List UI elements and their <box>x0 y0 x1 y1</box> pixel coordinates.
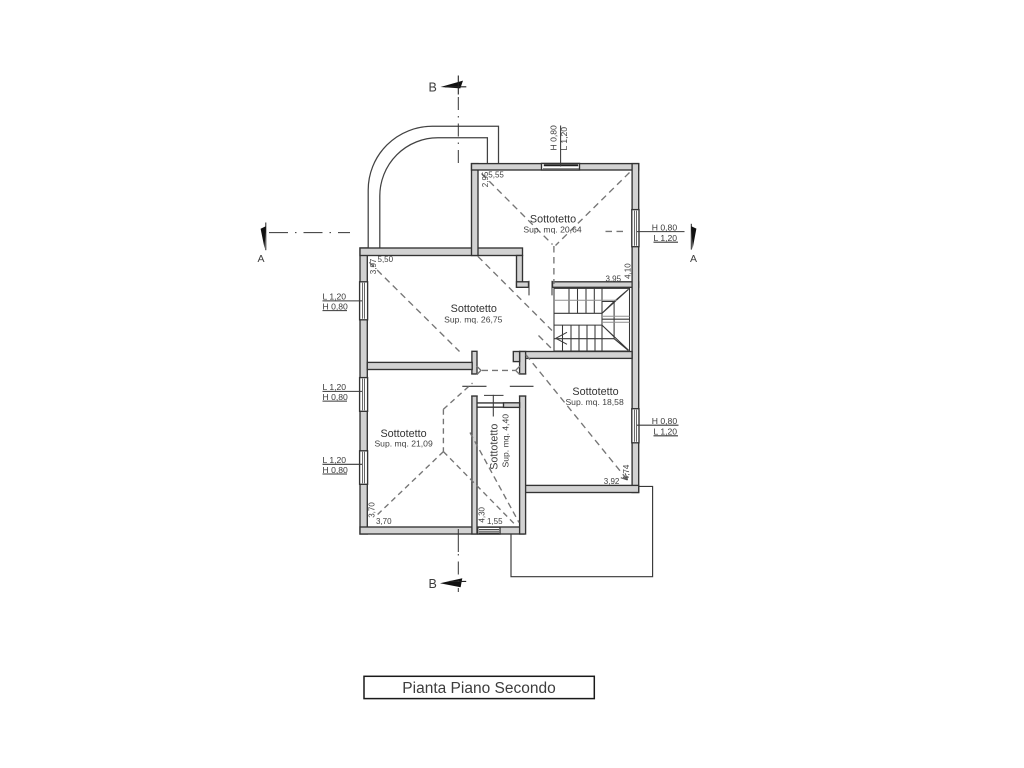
svg-text:H 0,80: H 0,80 <box>652 222 678 232</box>
svg-text:Sup. mq. 20,64: Sup. mq. 20,64 <box>523 224 582 234</box>
svg-text:H 0,80: H 0,80 <box>549 125 559 151</box>
svg-text:3,70: 3,70 <box>368 502 377 518</box>
svg-text:H 0,80: H 0,80 <box>323 301 349 311</box>
svg-text:L 1,20: L 1,20 <box>654 233 678 243</box>
svg-text:A: A <box>258 253 265 265</box>
svg-text:Pianta Piano Secondo: Pianta Piano Secondo <box>402 680 555 697</box>
svg-text:Sup. mq. 21,09: Sup. mq. 21,09 <box>374 438 433 448</box>
svg-text:3,95: 3,95 <box>606 274 622 283</box>
svg-text:3,70: 3,70 <box>376 517 392 526</box>
svg-text:B: B <box>429 577 437 591</box>
svg-text:H 0,80: H 0,80 <box>652 416 678 426</box>
svg-text:H 0,80: H 0,80 <box>323 392 349 402</box>
svg-text:4,74: 4,74 <box>622 464 631 480</box>
svg-text:3,97: 3,97 <box>369 258 378 274</box>
svg-text:H 0,80: H 0,80 <box>323 465 349 475</box>
svg-text:L 1,20: L 1,20 <box>323 292 347 302</box>
svg-text:Sottotetto: Sottotetto <box>489 424 501 470</box>
svg-text:1,55: 1,55 <box>487 517 503 526</box>
svg-text:Sup. mq. 18,58: Sup. mq. 18,58 <box>565 397 624 407</box>
svg-text:B: B <box>429 81 437 95</box>
svg-text:L 1,20: L 1,20 <box>654 427 678 437</box>
svg-text:4,10: 4,10 <box>623 263 632 279</box>
svg-text:Sup. mq. 4,40: Sup. mq. 4,40 <box>500 414 510 468</box>
svg-text:L 1,20: L 1,20 <box>323 382 347 392</box>
svg-text:A: A <box>690 253 697 265</box>
svg-text:Sup. mq. 26,75: Sup. mq. 26,75 <box>444 315 503 325</box>
svg-text:L 1,20: L 1,20 <box>559 127 569 151</box>
svg-text:2,95: 2,95 <box>481 171 490 187</box>
svg-text:4,30: 4,30 <box>477 506 486 522</box>
svg-text:5,50: 5,50 <box>378 255 394 264</box>
svg-text:3,92: 3,92 <box>604 477 620 486</box>
svg-text:Sottotetto: Sottotetto <box>451 303 497 315</box>
svg-text:5,55: 5,55 <box>488 170 504 179</box>
svg-text:L 1,20: L 1,20 <box>323 455 347 465</box>
